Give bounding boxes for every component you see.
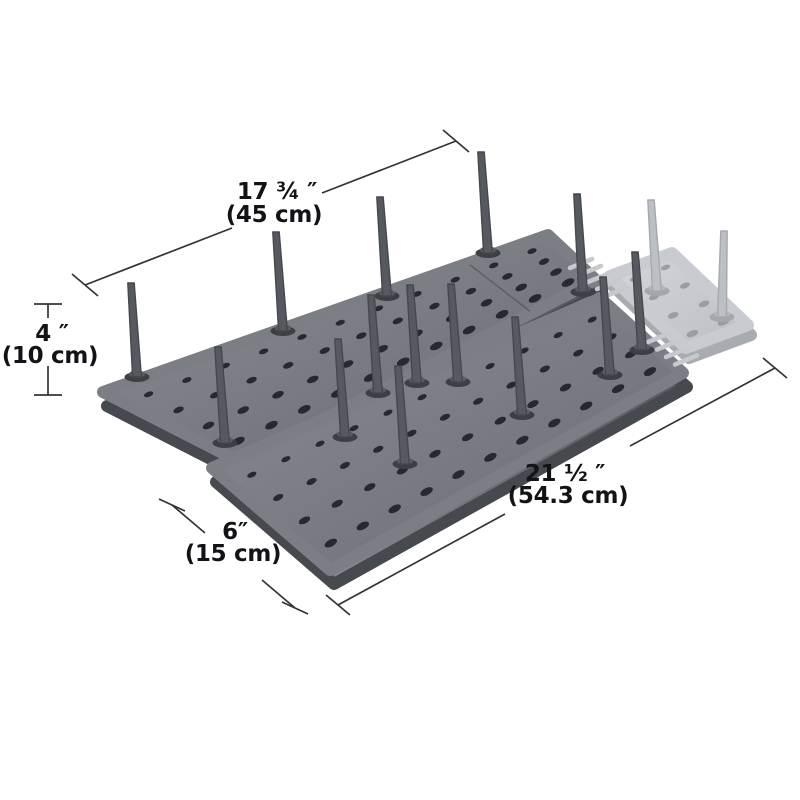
height-cm-label: (10 cm) (2, 343, 99, 369)
peg (476, 152, 501, 258)
depth-cm-label: (15 cm) (185, 541, 282, 567)
product-dimension-diagram: 17 ¾ ″ (45 cm) 4 ″ (10 cm) 6″ (15 cm) 21… (0, 0, 800, 800)
peg (125, 283, 150, 382)
length-cm-label: (54.3 cm) (508, 483, 629, 509)
pegboard-scene: 17 ¾ ″ (45 cm) 4 ″ (10 cm) 6″ (15 cm) 21… (0, 0, 800, 800)
width-cm-label: (45 cm) (226, 202, 323, 228)
pegboard-artwork (34, 130, 787, 615)
